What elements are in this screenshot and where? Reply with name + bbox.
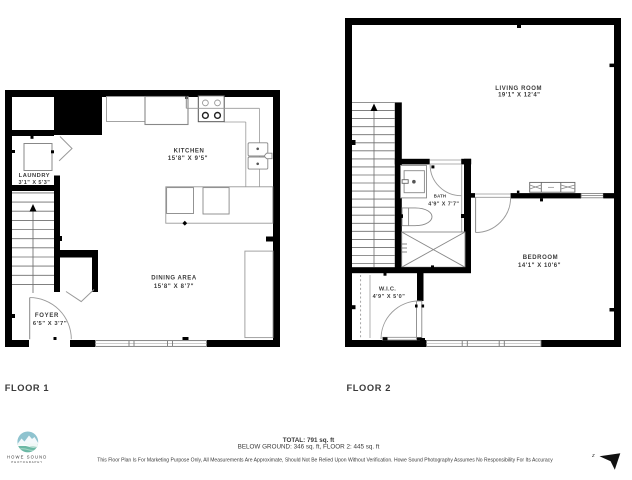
svg-text:z: z <box>591 453 595 459</box>
svg-text:15'8" X 9'5": 15'8" X 9'5" <box>168 156 208 162</box>
svg-text:6'5" X 3'7": 6'5" X 3'7" <box>33 321 67 327</box>
svg-text:15'8" X 8'7": 15'8" X 8'7" <box>154 284 194 290</box>
svg-text:LAUNDRY: LAUNDRY <box>19 173 50 179</box>
svg-text:FLOOR 1: FLOOR 1 <box>5 383 50 393</box>
svg-text:HOWE SOUND: HOWE SOUND <box>7 455 47 460</box>
svg-text:3'1" X 5'3": 3'1" X 5'3" <box>19 180 51 186</box>
svg-text:LIVING ROOM: LIVING ROOM <box>495 86 542 92</box>
svg-text:KITCHEN: KITCHEN <box>174 148 205 154</box>
svg-text:4'9" X 5'0": 4'9" X 5'0" <box>373 294 406 300</box>
svg-text:14'1" X 10'6": 14'1" X 10'6" <box>518 263 561 269</box>
svg-text:BATH: BATH <box>434 194 446 199</box>
svg-text:4'9" X 7'7": 4'9" X 7'7" <box>428 201 459 207</box>
svg-text:BEDROOM: BEDROOM <box>523 255 559 261</box>
svg-text:This Floor Plan Is For Marketi: This Floor Plan Is For Marketing Purpose… <box>97 458 553 464</box>
svg-text:W.I.C.: W.I.C. <box>379 286 396 292</box>
svg-text:PHOTOGRAPHY: PHOTOGRAPHY <box>11 460 43 464</box>
svg-text:BELOW GROUND: 346 sq. ft, FLOO: BELOW GROUND: 346 sq. ft, FLOOR 2: 445 s… <box>238 444 380 451</box>
svg-text:FOYER: FOYER <box>35 313 59 319</box>
svg-text:DINING AREA: DINING AREA <box>151 275 197 281</box>
svg-text:19'1" X 12'4": 19'1" X 12'4" <box>498 93 540 99</box>
svg-text:FLOOR 2: FLOOR 2 <box>347 383 392 393</box>
